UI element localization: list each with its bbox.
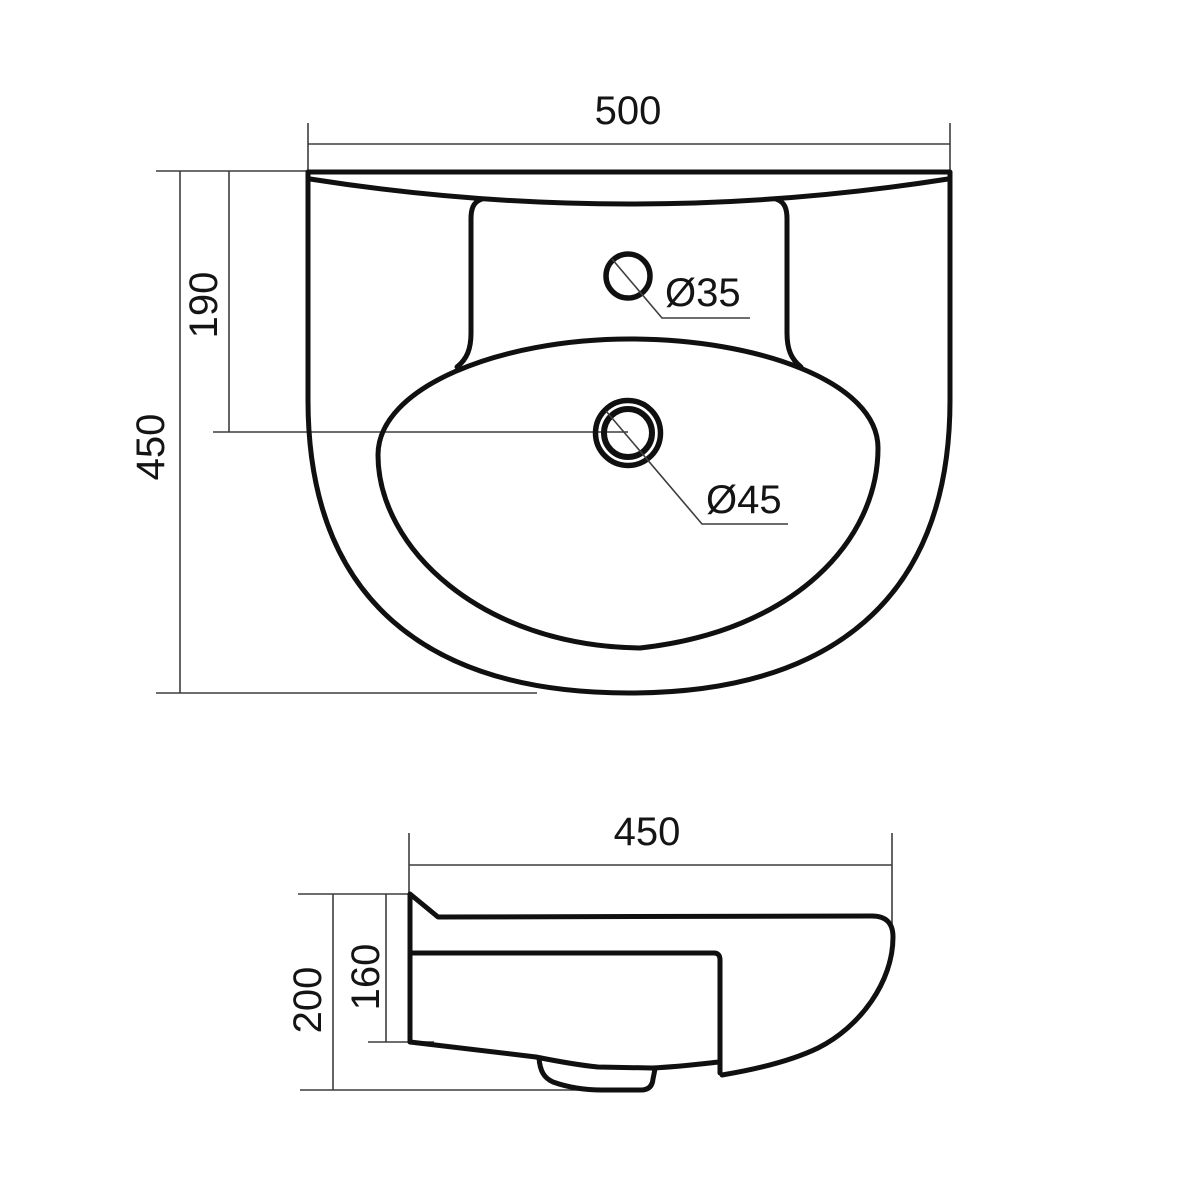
drawing-svg: 500 450 190 Ø35 Ø45	[0, 0, 1200, 1200]
right-deck-edge	[776, 199, 801, 367]
top-view-labels: 500 450 190 Ø35 Ø45	[129, 89, 782, 522]
profile-rim-shelf-line	[410, 953, 720, 1073]
height-dimension-label: 450	[129, 414, 173, 481]
left-deck-edge	[457, 199, 482, 367]
depth-dimension-label: 450	[614, 810, 681, 854]
top-view-dimension-lines	[156, 123, 950, 693]
sink-technical-drawing: 500 450 190 Ø35 Ø45	[0, 0, 1200, 1200]
profile-outer-outline	[410, 894, 893, 1075]
tap-hole-diameter-label: Ø35	[665, 271, 741, 315]
drain-diameter-label: Ø45	[706, 478, 782, 522]
drain-offset-dimension-label: 190	[182, 272, 226, 339]
back-height-dimension-label: 160	[344, 944, 388, 1011]
side-view: 450 200 160	[286, 810, 893, 1090]
side-view-labels: 450 200 160	[286, 810, 680, 1033]
top-view: 500 450 190 Ø35 Ø45	[129, 89, 950, 693]
width-dimension-label: 500	[595, 89, 662, 133]
side-view-outline	[410, 894, 893, 1090]
bowl-outline	[378, 339, 878, 648]
back-rim-arc	[310, 179, 948, 204]
profile-underside-line	[410, 1042, 719, 1068]
overall-height-dimension-label: 200	[286, 967, 330, 1034]
